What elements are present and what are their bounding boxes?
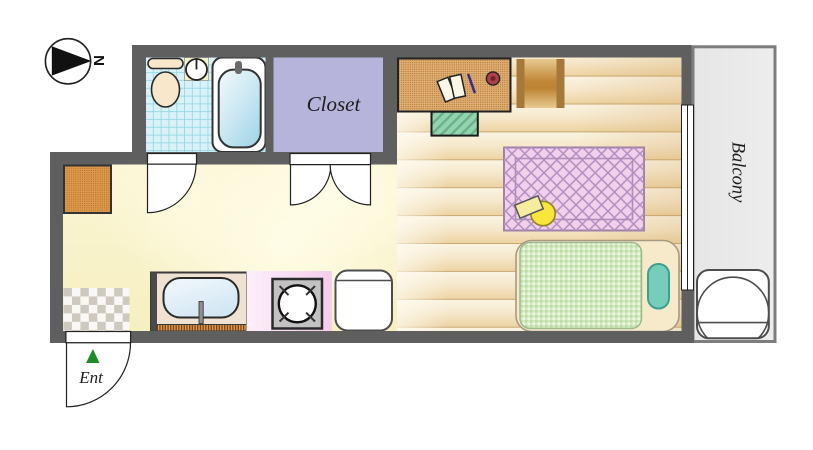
svg-text:Closet: Closet (307, 92, 362, 116)
svg-text:N: N (90, 55, 107, 66)
svg-text:Balcony: Balcony (728, 142, 748, 203)
svg-text:Ent: Ent (78, 368, 104, 387)
